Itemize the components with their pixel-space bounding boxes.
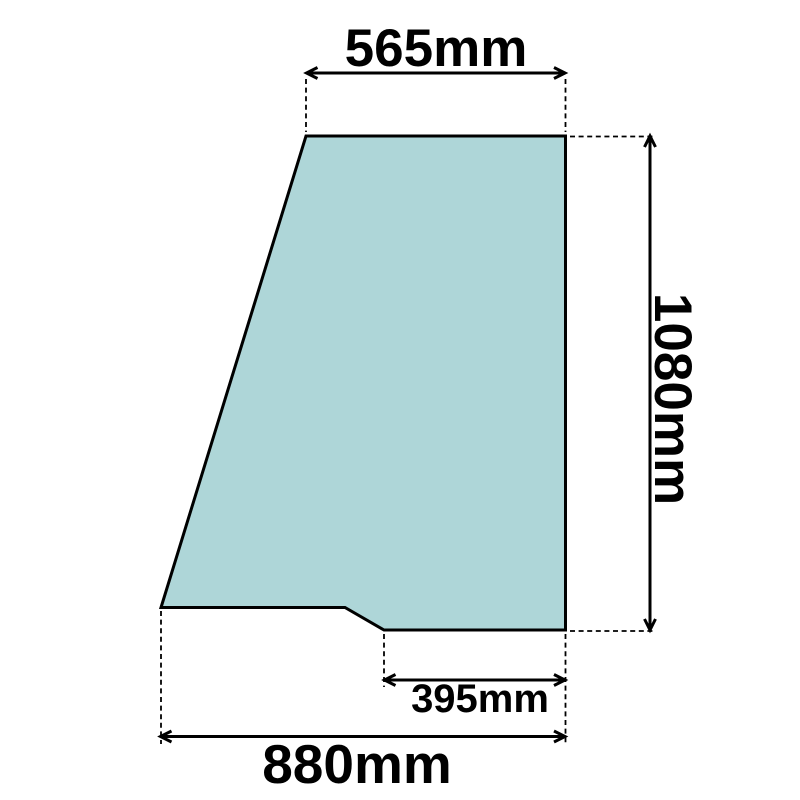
svg-text:1080mm: 1080mm — [643, 293, 702, 505]
svg-text:880mm: 880mm — [262, 733, 452, 795]
svg-text:565mm: 565mm — [345, 19, 528, 78]
svg-text:395mm: 395mm — [411, 677, 549, 721]
